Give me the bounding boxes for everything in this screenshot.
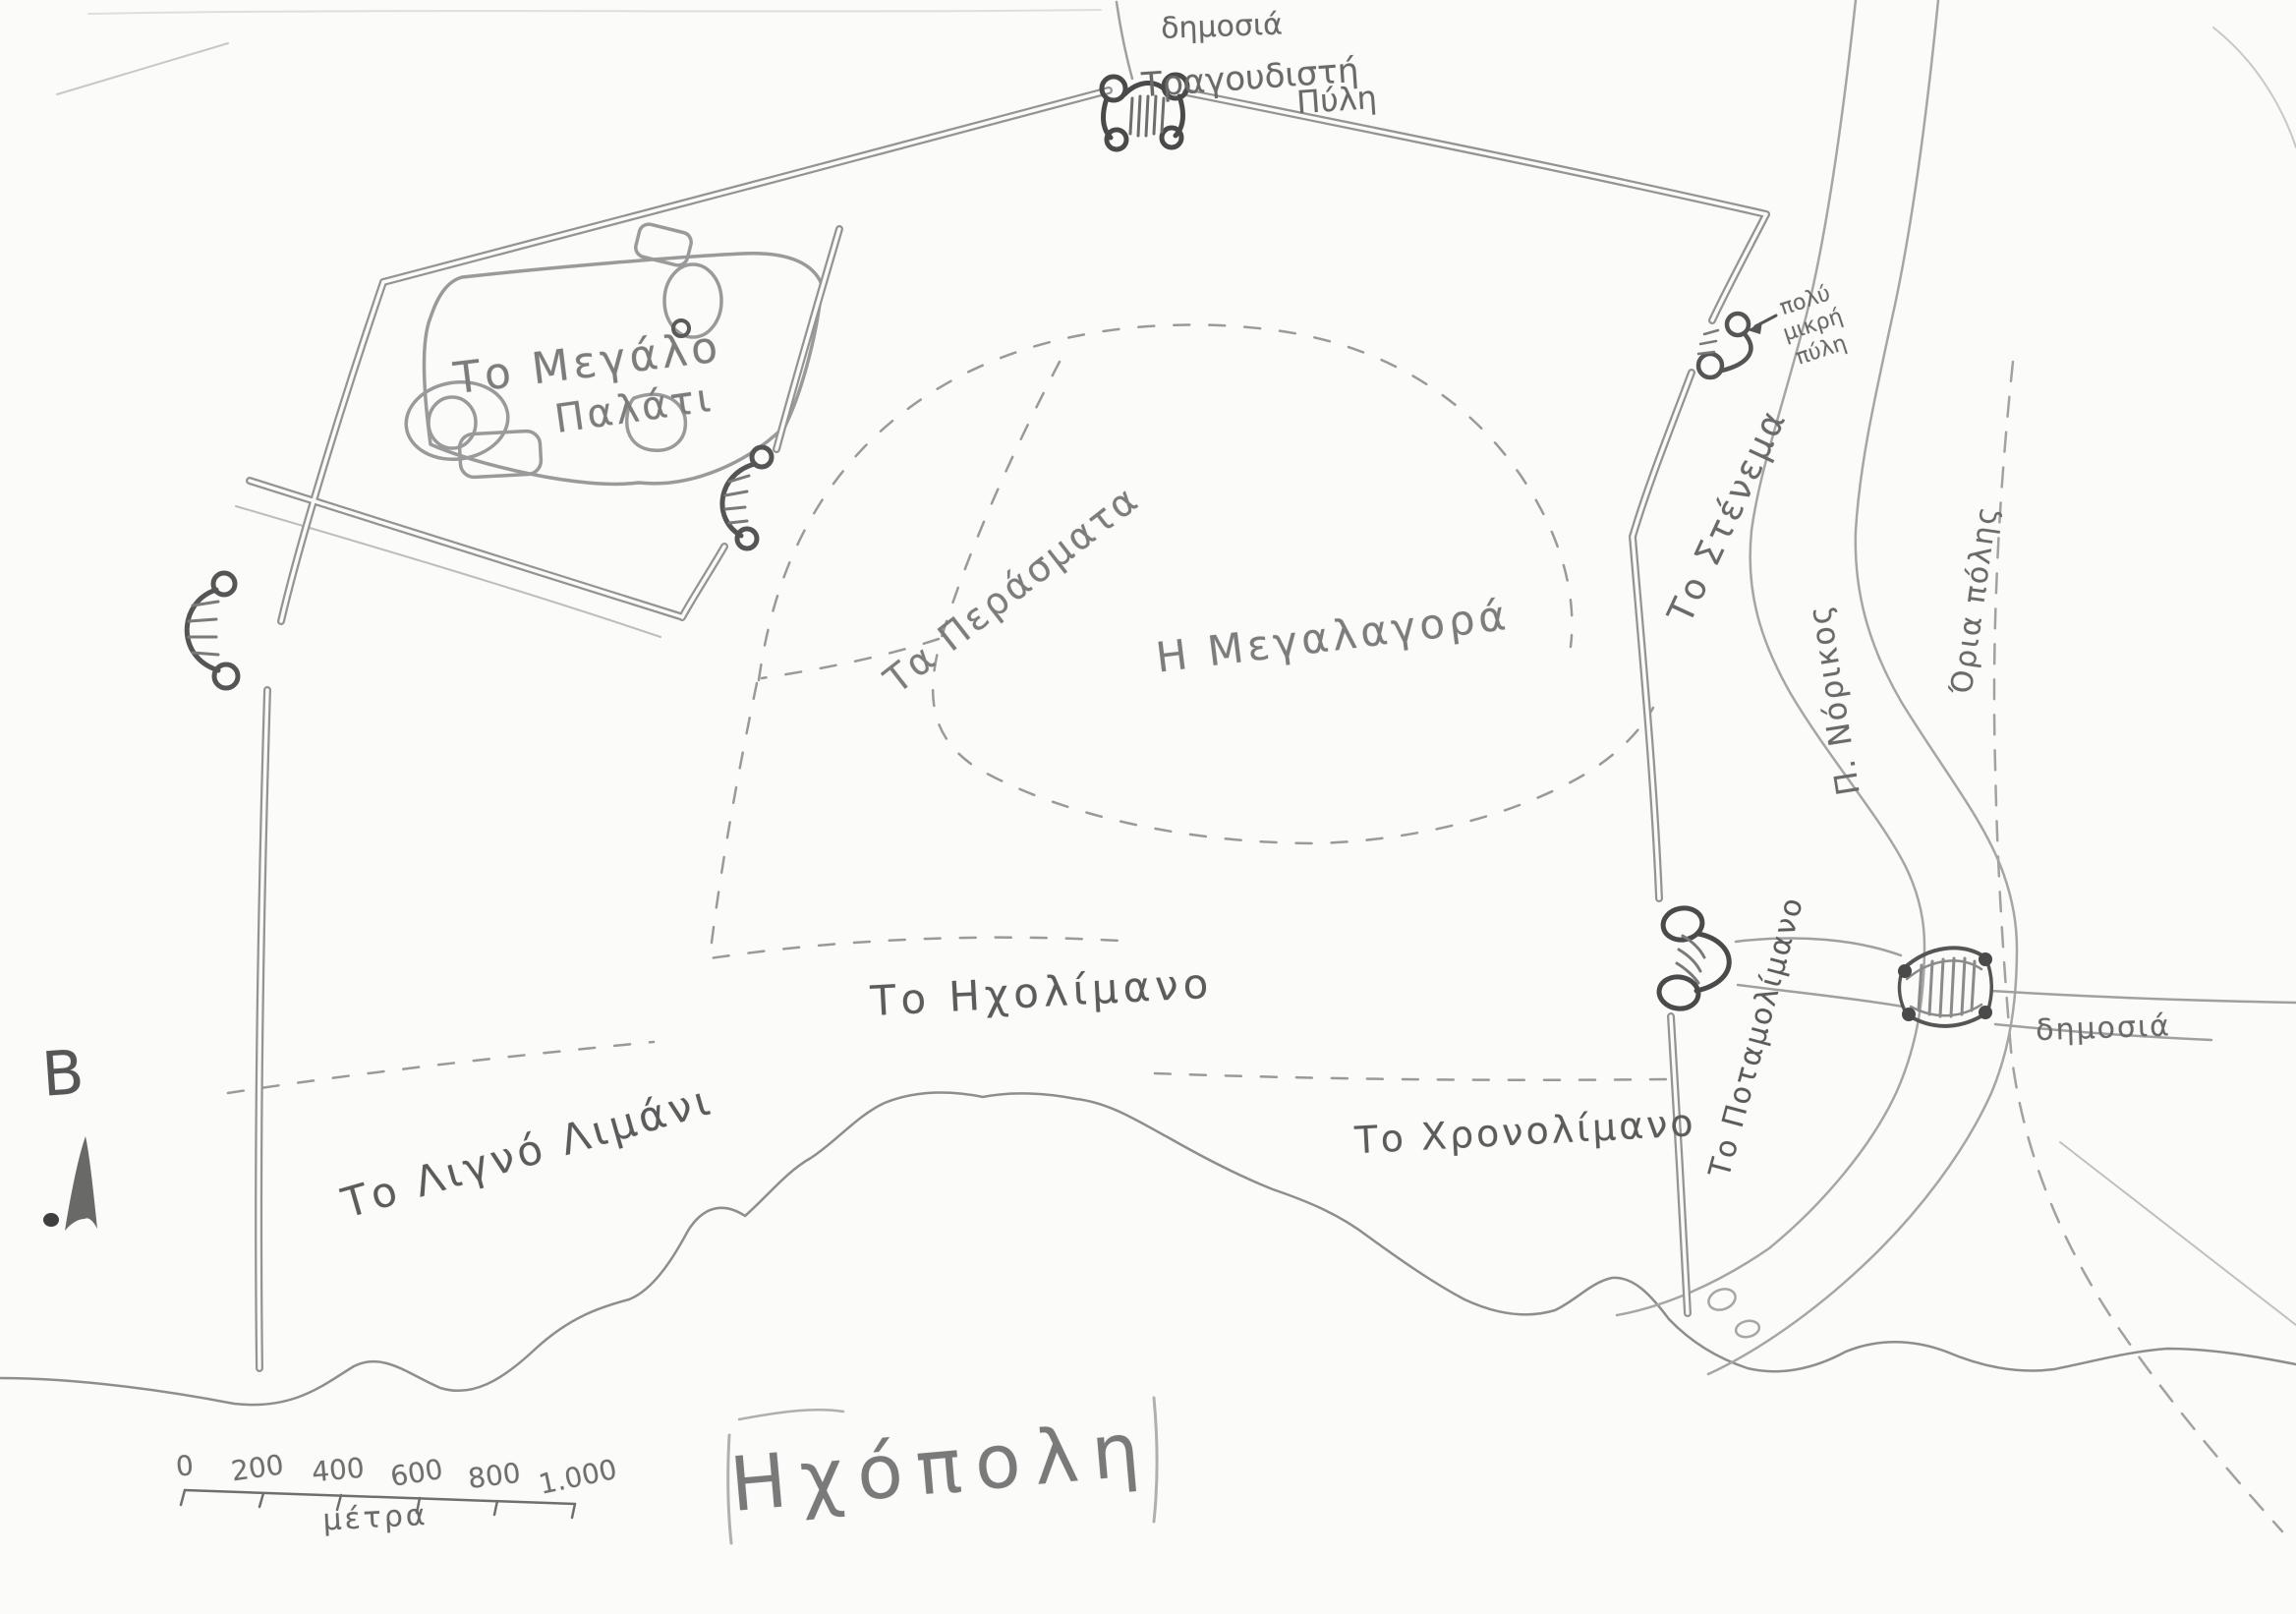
river-harbor-gate-symbol <box>1657 905 1729 1011</box>
north-road-line <box>1117 2 1132 79</box>
hand-drawn-city-map: δημοσιά Τραγουδιστή Πύλη Το Μεγάλο Παλάτ… <box>0 0 2296 1614</box>
north-road-label: δημοσιά <box>1161 9 1284 47</box>
north-arrow-icon <box>43 1136 97 1231</box>
scale-unit-label: μέτρα <box>322 1499 430 1538</box>
compass-north-letter: Β <box>39 1037 86 1110</box>
palace-buildings <box>236 222 822 637</box>
palace-gate-symbol <box>722 447 772 548</box>
city-limits-dashed-line <box>1994 362 2282 1531</box>
scale-tick-0: 0 <box>175 1450 196 1483</box>
bridge-symbol <box>1898 948 1992 1025</box>
scale-tick-400: 400 <box>311 1453 366 1489</box>
tiny-gate-symbol <box>1698 314 1751 377</box>
east-road-label: δημοσιά <box>2036 1009 2172 1048</box>
scale-tick-800: 800 <box>467 1458 523 1495</box>
map-drawing <box>0 0 2296 1614</box>
west-gate-symbol <box>187 573 238 688</box>
tiny-gate-arrow-icon <box>1748 316 1776 334</box>
coastline <box>0 1092 2296 1405</box>
singing-gate-label-line2: Πύλη <box>1295 80 1378 121</box>
